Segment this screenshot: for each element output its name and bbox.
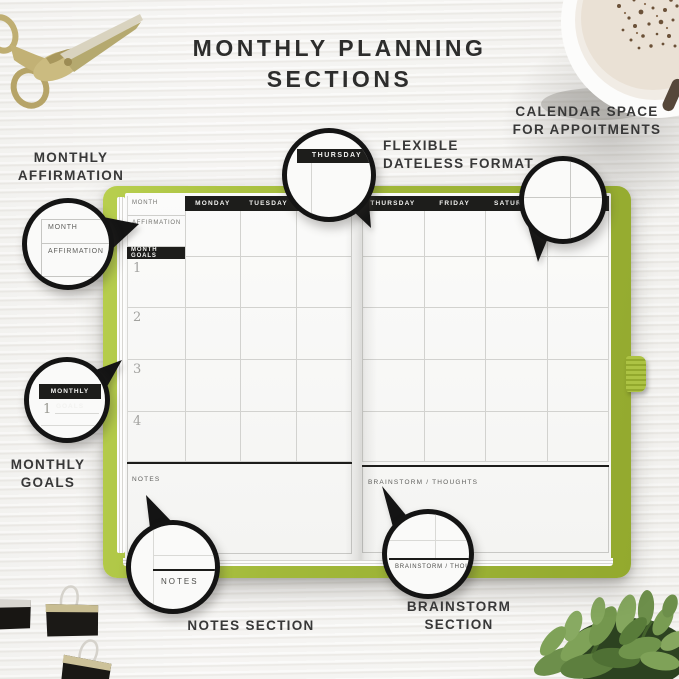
planner-pages: MONTH AFFIRMATION MONTH GOALS 1 2 3 4 MO… <box>117 191 618 565</box>
title-line-1: MONTHLY PLANNING <box>0 33 679 64</box>
day-monday: MONDAY <box>185 196 241 211</box>
magnified-month-label: MONTH <box>42 220 110 244</box>
magnifier-monthly-goals: MONTHLY GOALS 1 <box>24 357 110 443</box>
plant-image <box>528 566 679 679</box>
magnified-grid-line <box>570 161 571 244</box>
magnified-thursday-header: THURSDAY <box>297 149 376 163</box>
notes-label: NOTES <box>132 476 160 483</box>
label-notes-section: NOTES SECTION <box>165 617 337 635</box>
magnified-grid-line <box>387 540 474 541</box>
page-title: MONTHLY PLANNING SECTIONS <box>0 33 679 95</box>
goal-row-3: 3 <box>127 360 185 412</box>
label-brainstorm-section: BRAINSTORM SECTION <box>393 598 525 633</box>
pen-loop <box>626 356 646 392</box>
magnified-brainstorm-divider <box>389 558 474 560</box>
magnified-affirmation-label: AFFIRMATION <box>42 244 110 255</box>
label-calendar-space: CALENDAR SPACE FOR APPOITMENTS <box>498 103 676 138</box>
product-image: MONTHLY PLANNING SECTIONS MONTH AFFIRMAT… <box>0 0 679 679</box>
right-calendar-grid <box>362 211 609 462</box>
goal-row-2: 2 <box>127 308 185 360</box>
magnifier-brainstorm: BRAINSTORM / THOUGH <box>382 509 474 599</box>
planner-left-page: MONTH AFFIRMATION MONTH GOALS 1 2 3 4 MO… <box>125 193 361 560</box>
binder-clips-image <box>0 574 140 679</box>
magnified-goals-badge: MONTHLY GOALS <box>39 384 101 399</box>
magnifier-affirmation: MONTH AFFIRMATION <box>22 198 114 290</box>
affirmation-field: AFFIRMATION <box>127 216 185 247</box>
magnified-rule-line <box>41 425 99 426</box>
label-monthly-goals: MONTHLY GOALS <box>0 456 96 491</box>
magnified-goal-number: 1 <box>43 402 51 417</box>
label-monthly-affirmation: MONTHLY AFFIRMATION <box>6 149 136 184</box>
page-gutter <box>345 193 377 560</box>
label-flexible-dateless-format: FLEXIBLE DATELESS FORMAT <box>383 137 553 172</box>
magnified-grid-line <box>435 514 436 558</box>
magnified-grid-line <box>153 555 220 556</box>
magnified-month-box: MONTH AFFIRMATION <box>41 219 111 277</box>
magnified-notes-label: NOTES <box>161 577 199 586</box>
brainstorm-label: BRAINSTORM / THOUGHTS <box>368 479 478 486</box>
magnified-grid-line <box>524 197 607 198</box>
magnifier-dateless: THURSDAY <box>282 128 376 222</box>
magnified-rule-line <box>55 413 99 414</box>
planner-right-page: THURSDAY FRIDAY SATURDAY SUNDAY BRAINSTO… <box>361 193 611 560</box>
title-line-2: SECTIONS <box>0 64 679 95</box>
left-calendar-grid <box>185 211 352 462</box>
day-friday: FRIDAY <box>424 196 486 211</box>
goal-row-4: 4 <box>127 412 185 462</box>
month-field: MONTH <box>127 196 185 216</box>
month-goals-list: 1 2 3 4 <box>127 259 185 462</box>
month-goals-header: MONTH GOALS <box>127 247 185 259</box>
magnified-grid-line <box>311 163 312 222</box>
magnified-notes-divider <box>153 569 220 571</box>
magnified-brainstorm-label: BRAINSTORM / THOUGH <box>395 564 474 570</box>
goal-row-1: 1 <box>127 259 185 308</box>
magnifier-notes: NOTES <box>126 520 220 614</box>
page-stack-edge-left <box>117 197 125 553</box>
